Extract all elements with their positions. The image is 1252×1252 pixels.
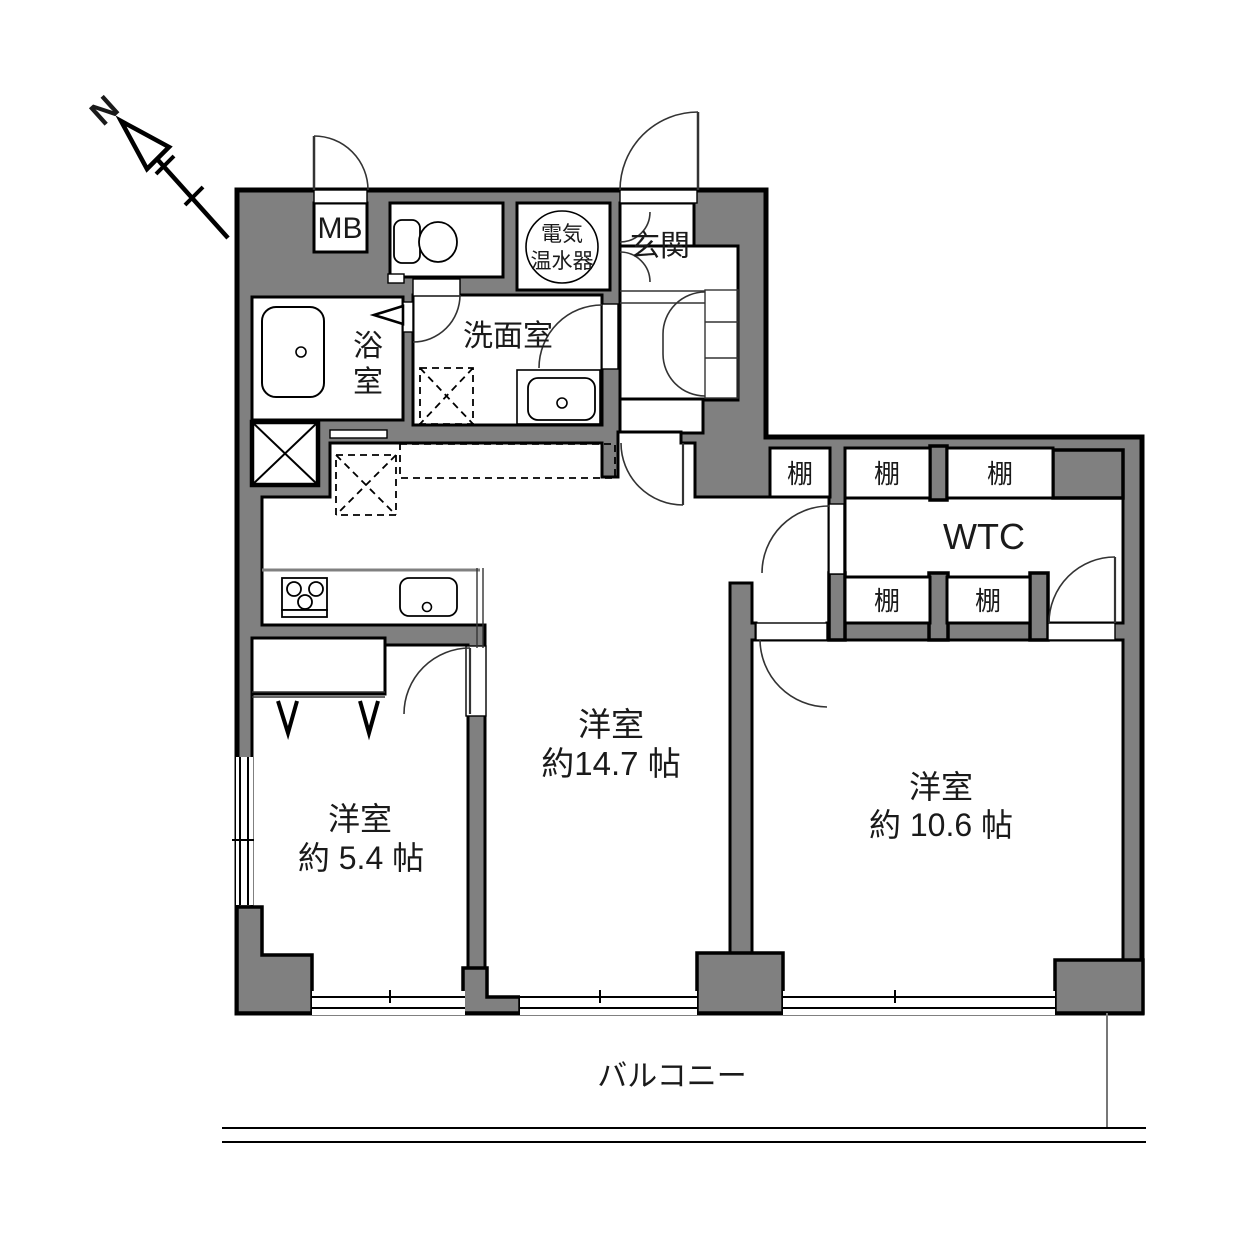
room-hall-upper: [620, 246, 738, 400]
label-bedroom-large-name: 洋室: [909, 769, 973, 805]
floorplan-svg: N MB 玄関 電気 温水器 洗面室 浴 室 WTC 棚 棚 棚 棚 棚 洋室 …: [0, 0, 1252, 1252]
label-shelf-2: 棚: [874, 459, 900, 489]
bedroom-small-closet: [252, 638, 385, 694]
label-bedroom-small-size: 約 5.4 帖: [298, 840, 424, 876]
label-shelf-5: 棚: [975, 586, 1001, 616]
elevator-shaft: [252, 422, 318, 485]
kitchen-sink-drain: [423, 603, 432, 612]
stove-grill: [282, 610, 327, 617]
label-bathroom-1: 浴: [353, 330, 383, 363]
label-mb: MB: [318, 212, 363, 245]
label-shelf-3: 棚: [987, 459, 1013, 489]
stove-burner-3: [298, 595, 312, 609]
north-label: N: [83, 88, 127, 133]
label-shelf-1: 棚: [787, 459, 813, 489]
floorplan-canvas: N MB 玄関 電気 温水器 洗面室 浴 室 WTC 棚 棚 棚 棚 棚 洋室 …: [0, 0, 1252, 1252]
block-wtc-corner: [1053, 450, 1123, 498]
opening-wtc-left-door: [829, 504, 844, 574]
arc-entrance-door: [620, 112, 698, 190]
label-living-name: 洋室: [578, 706, 644, 743]
room-hall-lower: [620, 399, 703, 433]
post-wtc-mid-lower: [929, 573, 948, 640]
post-wtc-left: [829, 573, 845, 640]
label-bathroom-2: 室: [353, 366, 383, 399]
label-entrance: 玄関: [630, 230, 690, 263]
opening-bedroom-large-door: [756, 623, 827, 640]
label-shelf-4: 棚: [874, 586, 900, 616]
bathtub: [262, 307, 324, 397]
label-heater-2: 温水器: [531, 250, 594, 273]
label-heater-1: 電気: [541, 223, 583, 246]
opening-washroom-door: [602, 304, 618, 369]
bathtub-drain: [296, 347, 306, 357]
wall-notch: [388, 274, 404, 283]
label-balcony: バルコニー: [597, 1060, 746, 1093]
label-bedroom-large-size: 約 10.6 帖: [869, 807, 1013, 843]
wall-slot: [330, 430, 387, 438]
label-living-size: 約14.7 帖: [541, 745, 680, 782]
block-bottom-right: [1055, 960, 1143, 1013]
stove-burner-1: [287, 582, 301, 596]
opening-mb-door: [314, 190, 367, 203]
opening-wtc-right-door: [1048, 623, 1115, 640]
opening-bath-door: [403, 302, 413, 332]
post-wtc-right-lower: [1030, 573, 1048, 640]
opening-entrance-door: [620, 190, 697, 203]
label-bedroom-small-name: 洋室: [328, 801, 392, 837]
label-washroom: 洗面室: [463, 320, 553, 353]
post-wtc-mid-upper: [930, 446, 947, 500]
stove-burner-2: [309, 582, 323, 596]
toilet-tank: [394, 220, 420, 263]
vanity-drain: [557, 398, 567, 408]
north-arrow: N: [83, 88, 228, 238]
block-bottom-t: [697, 953, 783, 1013]
opening-toilet-door: [413, 279, 460, 296]
arc-mb-door: [314, 136, 368, 190]
toilet-bowl: [419, 222, 457, 262]
label-wtc: WTC: [943, 516, 1025, 557]
